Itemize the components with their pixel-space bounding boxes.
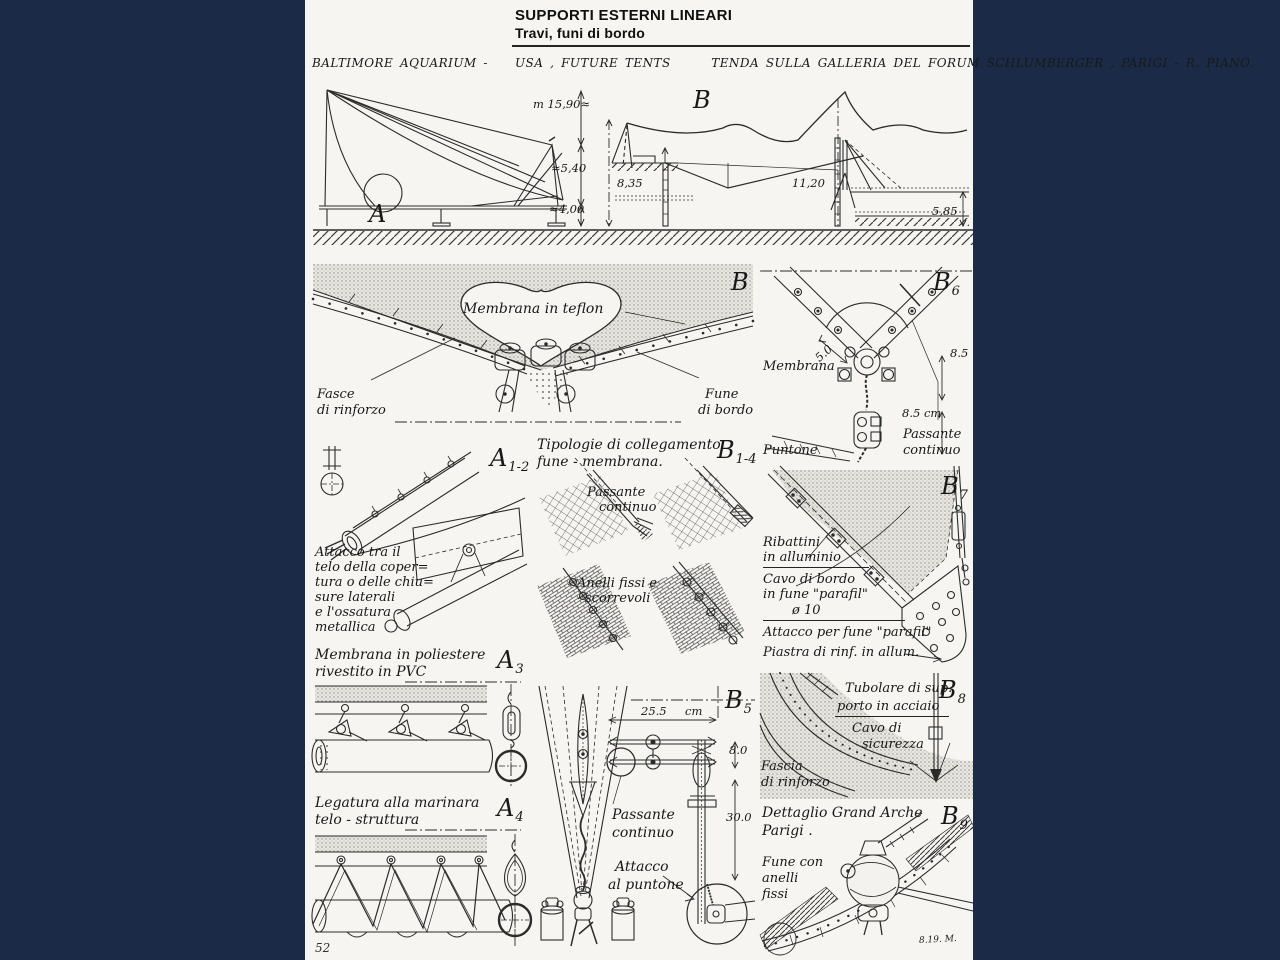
label-cavo-sic1: Cavo di (852, 722, 901, 735)
label-b9-fune2: anelli (762, 872, 798, 885)
dim-b6-upper: 8.5 (950, 348, 968, 360)
label-a4-title1: Legatura alla marinara (315, 796, 479, 810)
document-page: SUPPORTI ESTERNI LINEARI Travi, funi di … (305, 0, 973, 960)
label-a12-line3: tura o delle chiu= (315, 576, 434, 589)
underline-ribattini (763, 567, 869, 568)
plate-letter-b: B (693, 88, 711, 112)
label-a12-line4: sure laterali (315, 591, 395, 604)
caption-line: BALTIMORE AQUARIUM - USA , FUTURE TENTS … (312, 57, 1254, 69)
label-b5-attacco2: al puntone (608, 878, 684, 892)
label-b14-passante1: Passante (587, 486, 645, 499)
label-membrana-teflon: Membrana in teflon (463, 302, 603, 316)
plate-letter-a12: A1-2 (490, 446, 528, 470)
label-cavo2: in fune "parafil" (763, 588, 868, 601)
label-a4-title2: telo - struttura (315, 813, 419, 827)
label-fascia2: di rinforzo (761, 776, 830, 789)
label-tubolare1: Tubolare di sup. (845, 682, 952, 695)
label-a12-line6: metallica (315, 621, 376, 634)
plate-letter-a4: A4 (497, 796, 523, 820)
label-b9-fune3: fissi (762, 888, 788, 901)
screenshot-stage: SUPPORTI ESTERNI LINEARI Travi, funi di … (0, 0, 1280, 960)
label-b14-anelli2: scorrevoli (585, 592, 650, 605)
underline-tubolare (835, 716, 949, 717)
label-tubolare2: porto in acciaio (837, 700, 939, 713)
plate-letter-b-panel: B (731, 270, 749, 294)
label-b5-passante1: Passante (612, 808, 675, 822)
dim-height-total: m 15,90≈ (533, 99, 590, 111)
label-b9-title1: Dettaglio Grand Arche (762, 806, 923, 820)
label-b14-anelli1: Anelli fissi e (577, 577, 657, 590)
label-ribattini1: Ribattini (763, 536, 820, 549)
label-b5-attacco1: Attacco (615, 860, 669, 874)
dim-b5-width-unit: cm (685, 706, 702, 718)
label-b14-title2: fune - membrana. (537, 455, 663, 469)
label-passante-b6-1: Passante (903, 428, 961, 441)
dim-1120: 11,20 (792, 178, 825, 190)
label-fasce: Fasce (317, 388, 355, 401)
drawing-elevation-b (603, 78, 969, 226)
label-a3-title1: Membrana in poliestere (315, 648, 485, 662)
label-cavo-sic2: sicurezza (862, 738, 924, 751)
dim-b5-width: 25.5 (641, 706, 667, 718)
label-di-bordo: di bordo (698, 404, 753, 417)
dim-upper: ≈5,40 (551, 163, 586, 175)
label-a12-line5: e l'ossatura (315, 606, 391, 619)
label-a12-line2: telo della coper= (315, 561, 428, 574)
label-a3-title2: rivestito in PVC (315, 665, 426, 679)
plate-letter-a: A (369, 202, 386, 226)
page-number: 52 (315, 942, 330, 954)
plate-letter-b7: B7 (941, 474, 967, 498)
dim-585: 5,85 (932, 206, 958, 218)
page-subtitle: Travi, funi di bordo (515, 26, 645, 40)
label-b14-passante2: continuo (599, 501, 656, 514)
plate-letter-b14: B1-4 (717, 438, 756, 462)
header-rule (512, 45, 970, 47)
drawing-ground-hatch (313, 228, 973, 246)
dim-b5-lower: 30.0 (726, 812, 752, 824)
drawing-panel-b14 (535, 436, 753, 682)
label-membrana-b6: Membrana (763, 360, 835, 373)
plate-letter-a3: A3 (497, 648, 523, 672)
plate-letter-b9: B9 (941, 804, 967, 828)
label-fascia1: Fascia (761, 760, 803, 773)
label-b9-fune1: Fune con (762, 856, 823, 869)
label-di-rinforzo: di rinforzo (317, 404, 386, 417)
label-b9-title2: Parigi . (762, 824, 813, 838)
plate-letter-b5: B5 (725, 688, 751, 712)
label-passante-b6-2: continuo (903, 444, 960, 457)
dim-lower: ≈4,00 (549, 204, 584, 216)
label-cavo3: ø 10 (792, 604, 821, 617)
page-title: SUPPORTI ESTERNI LINEARI (515, 8, 732, 23)
label-b5-passante2: continuo (612, 826, 674, 840)
plate-letter-b6: B6 (933, 270, 959, 294)
label-ribattini2: in alluminio (763, 551, 841, 564)
label-fune: Fune (705, 388, 738, 401)
label-a12-line1: Attacco tra il (315, 546, 401, 559)
label-b14-title1: Tipologie di collegamento (537, 438, 721, 452)
dim-b5-upper: 8.0 (729, 745, 747, 757)
dim-b6-lower: 8.5 cm (902, 408, 941, 420)
label-piastra: Piastra di rinf. in allum. (763, 646, 919, 659)
label-attacco-parafil: Attacco per fune "parafil" (763, 626, 931, 639)
underline-cavo (763, 620, 905, 621)
dim-835: 8,35 (617, 178, 643, 190)
label-cavo1: Cavo di bordo (763, 573, 855, 586)
label-puntone: Puntone (763, 444, 818, 457)
